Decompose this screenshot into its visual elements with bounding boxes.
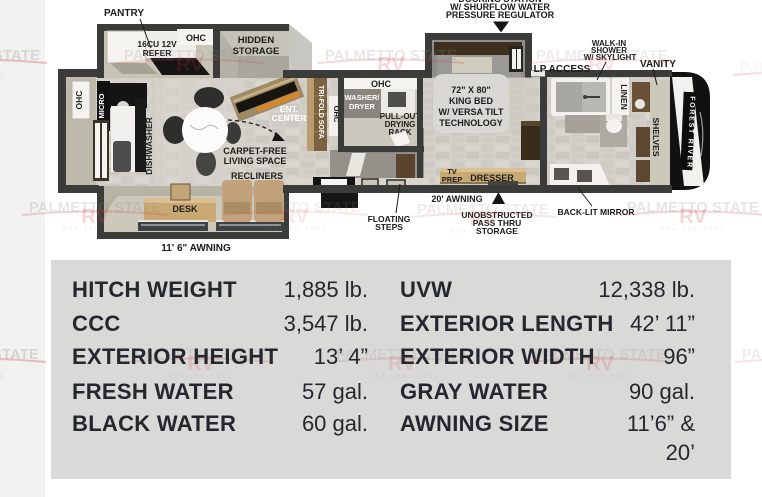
svg-text:DRYER: DRYER	[349, 102, 376, 111]
svg-text:TECHNOLOGY: TECHNOLOGY	[439, 118, 503, 128]
svg-text:LP ACCESS: LP ACCESS	[534, 64, 591, 75]
svg-text:SHELVES: SHELVES	[651, 117, 661, 156]
svg-text:72" X 80": 72" X 80"	[451, 85, 491, 95]
svg-text:11' 6" AWNING: 11' 6" AWNING	[161, 243, 231, 254]
svg-text:STORAGE: STORAGE	[476, 226, 518, 236]
svg-text:BACK-LIT MIRROR: BACK-LIT MIRROR	[558, 207, 635, 217]
svg-text:PANTRY: PANTRY	[104, 8, 144, 19]
svg-text:VANITY: VANITY	[640, 59, 676, 70]
svg-text:MICRO: MICRO	[97, 93, 106, 118]
svg-text:LINEN: LINEN	[619, 84, 629, 110]
svg-text:KING BED: KING BED	[449, 96, 494, 106]
svg-text:LIVING SPACE: LIVING SPACE	[224, 156, 287, 166]
svg-text:TRI-FOLD SOFA: TRI-FOLD SOFA	[317, 85, 324, 139]
svg-text:REFER: REFER	[143, 48, 172, 58]
svg-text:OHC: OHC	[74, 91, 84, 110]
svg-text:PRESSURE REGULATOR: PRESSURE REGULATOR	[446, 10, 555, 20]
svg-text:HIDDEN: HIDDEN	[238, 35, 275, 46]
svg-text:20' AWNING: 20' AWNING	[431, 194, 482, 204]
svg-text:CENTER: CENTER	[272, 113, 307, 123]
svg-text:OHC: OHC	[186, 33, 207, 43]
svg-text:W/ SKYLIGHT: W/ SKYLIGHT	[584, 53, 637, 62]
svg-text:CARPET-FREE: CARPET-FREE	[223, 146, 287, 156]
svg-text:RECLINERS: RECLINERS	[231, 171, 283, 181]
svg-text:OHC: OHC	[371, 79, 392, 89]
svg-text:PALMETTO STATE: PALMETTO STATE	[742, 347, 762, 363]
svg-text:WASHER/: WASHER/	[344, 93, 380, 102]
svg-text:DISHWASHER: DISHWASHER	[144, 117, 154, 175]
svg-text:STORAGE: STORAGE	[233, 46, 280, 57]
svg-text:W/ VERSA TILT: W/ VERSA TILT	[439, 107, 504, 117]
svg-text:STEPS: STEPS	[375, 222, 403, 232]
svg-text:DESK: DESK	[172, 204, 198, 214]
